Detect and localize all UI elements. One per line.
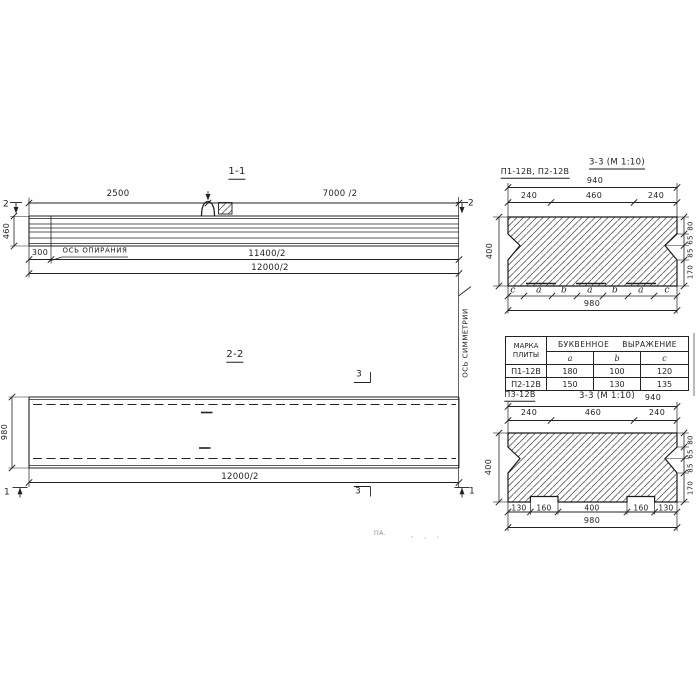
letter-a: a — [587, 287, 593, 296]
dim-160: 160 — [633, 504, 648, 512]
symmetry-axis-label: ОСЬ СИММЕТРИИ — [463, 308, 470, 378]
dim-170: 170 — [688, 265, 695, 279]
dim-460: 460 — [585, 409, 601, 417]
table-subheader-a: a — [547, 352, 594, 365]
cell-mark: П1-12В — [506, 365, 547, 378]
support-axis-label: ОСЬ ОПИРАНИЯ — [62, 248, 127, 255]
dim-980-width: 980 — [1, 424, 9, 440]
dim-460-height: 460 — [3, 223, 11, 239]
dim-940: 940 — [645, 394, 661, 402]
dim-80: 80 — [688, 435, 695, 445]
section-p3-label: П3-12В — [504, 391, 535, 402]
dim-85: 85 — [688, 248, 695, 258]
letter-a: a — [536, 287, 542, 296]
dim-65: 65 — [688, 449, 695, 459]
cut-marker-1-right: 1 — [469, 488, 475, 497]
view-1-1-title: 1-1 — [228, 167, 245, 180]
cell-b: 100 — [594, 365, 641, 378]
hatched-section-body — [508, 433, 677, 502]
section-p12-label: П1-12В, П2-12В — [501, 168, 570, 179]
dim-240-right: 240 — [648, 192, 664, 200]
dim-2500: 2500 — [107, 190, 130, 199]
dim-130: 130 — [511, 504, 526, 512]
section-p3-title: 3-3 (М 1:10) — [579, 392, 635, 401]
dim-130: 130 — [658, 504, 673, 512]
cut-marker-2-left: 2 — [3, 201, 9, 210]
dim-170: 170 — [688, 481, 695, 495]
dim-240-right: 240 — [649, 409, 665, 417]
dim-400: 400 — [486, 243, 494, 259]
table-row: П1-12В 180 100 120 — [506, 365, 689, 378]
dim-7000-2: 7000 /2 — [323, 190, 358, 199]
dim-12000-2-plan: 12000/2 — [221, 472, 258, 481]
dim-65: 65 — [688, 235, 695, 245]
dim-240-left: 240 — [521, 409, 537, 417]
table-subheader-c: c — [641, 352, 689, 365]
cut-marker-3-top: 3 — [356, 371, 362, 380]
table-header-expression: БУКВЕННОЕ ВЫРАЖЕНИЕ — [547, 337, 689, 352]
dim-980-section: 980 — [584, 300, 600, 308]
letter-c: c — [664, 287, 669, 296]
dim-11400-2: 11400/2 — [248, 249, 285, 258]
dim-400: 400 — [485, 459, 493, 475]
cell-a: 150 — [547, 378, 594, 391]
cell-c: 120 — [641, 365, 689, 378]
hatched-section-body — [508, 217, 677, 286]
section-p12-title: 3-3 (М 1:10) — [589, 159, 645, 170]
dim-460: 460 — [586, 192, 602, 200]
dim-85: 85 — [688, 463, 695, 473]
letter-a: a — [638, 287, 644, 296]
cell-b: 130 — [594, 378, 641, 391]
faint-artifact: ПА. — [374, 530, 386, 537]
scan-noise — [411, 536, 439, 539]
cut-marker-1-left: 1 — [4, 489, 10, 498]
table-header-mark: МАРКА ПЛИТЫ — [506, 337, 547, 365]
table-subheader-b: b — [594, 352, 641, 365]
cell-mark: П2-12В — [506, 378, 547, 391]
cell-c: 135 — [641, 378, 689, 391]
cut-marker-2-right: 2 — [468, 200, 474, 209]
dim-240-left: 240 — [521, 192, 537, 200]
dim-940: 940 — [587, 177, 603, 185]
dim-160: 160 — [536, 504, 551, 512]
table-row: П2-12В 150 130 135 — [506, 378, 689, 391]
cut-marker-3-bottom: 3 — [355, 488, 361, 497]
letter-values-table: МАРКА ПЛИТЫ БУКВЕННОЕ ВЫРАЖЕНИЕ a b c П1… — [505, 336, 689, 391]
view-2-2-title: 2-2 — [226, 350, 243, 363]
view-1-1-linework — [10, 191, 468, 278]
letter-b: b — [612, 287, 618, 296]
cell-a: 180 — [547, 365, 594, 378]
dim-12000-2: 12000/2 — [251, 263, 288, 272]
dim-80: 80 — [688, 221, 695, 231]
dim-980-section: 980 — [584, 517, 600, 525]
dim-400-bottom: 400 — [584, 504, 599, 512]
blueprint-scan: 1-1 2500 7000 /2 2 2 460 300 ОСЬ ОПИРАНИ… — [0, 0, 700, 700]
dim-300: 300 — [32, 249, 48, 257]
detail-marker — [219, 203, 233, 215]
letter-b: b — [561, 287, 567, 296]
table-header-row: МАРКА ПЛИТЫ БУКВЕННОЕ ВЫРАЖЕНИЕ — [506, 337, 689, 352]
letter-c: c — [510, 287, 515, 296]
